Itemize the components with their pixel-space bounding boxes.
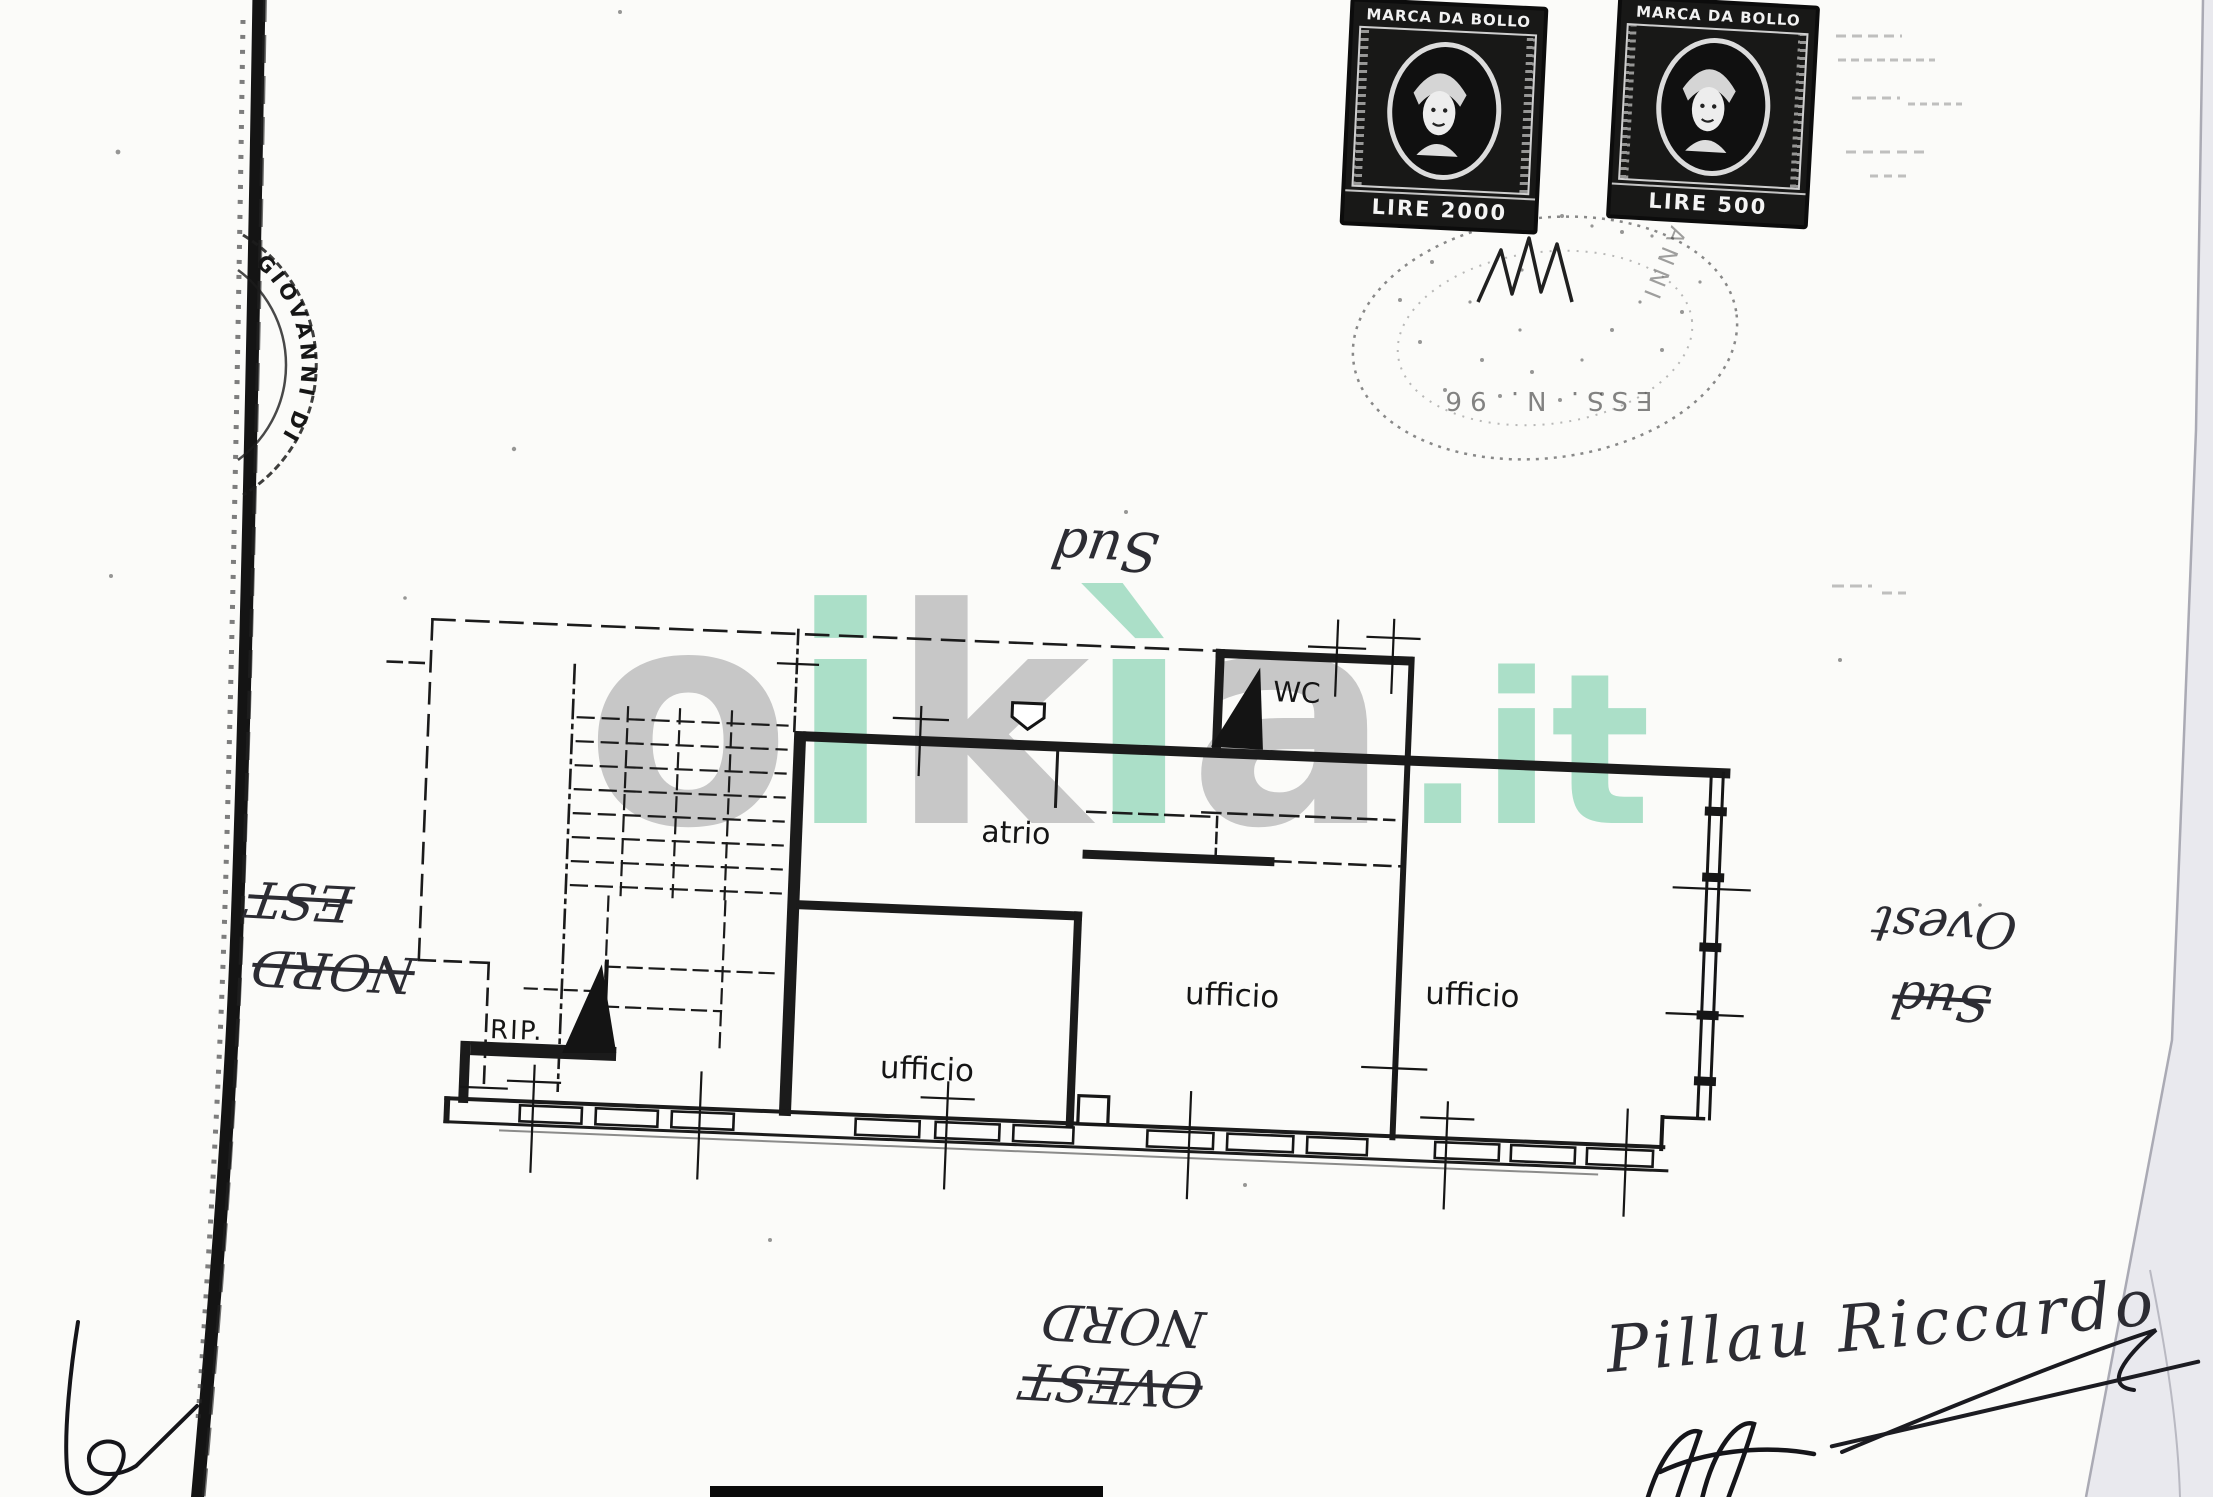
postmark-arc-text: ESS. N. 96 xyxy=(1437,385,1652,415)
wall-bottom-endcap xyxy=(443,1096,450,1123)
orientation-note-bottom-lower: OVEST xyxy=(1018,1351,1207,1418)
italia-head-icon xyxy=(1658,40,1758,163)
orientation-note-right-upper: Ovest xyxy=(1868,894,2022,959)
pier xyxy=(1078,1096,1109,1125)
room-label-atrio: atrio xyxy=(981,815,1052,853)
wall-top xyxy=(803,731,1731,778)
orientation-note-left-lower: NORD xyxy=(248,938,419,1004)
italia-head-icon xyxy=(1390,44,1490,166)
room-label-ufficio-middle: ufficio xyxy=(1184,976,1280,1016)
stamp-effigy xyxy=(1384,39,1505,182)
stamp-denomination: LIRE 2000 xyxy=(1344,189,1535,230)
wall-stairwell xyxy=(779,731,806,1116)
windows-bottom xyxy=(519,1073,1654,1166)
wall-atrio-south xyxy=(1082,850,1274,867)
orientation-note-left-upper: EST xyxy=(244,869,357,932)
room-label-rip: RIP. xyxy=(489,1015,544,1047)
wall-right xyxy=(1661,771,1728,1151)
revenue-stamp-2000: MARCA DA BOLLO LIRE 2000 xyxy=(1340,0,1549,235)
wall-rip-left xyxy=(458,1041,470,1103)
pen-scribble-bottom-left xyxy=(66,1322,197,1493)
room-labels: atrio WC RIP. ufficio ufficio ufficio xyxy=(488,644,1532,1111)
stamp-ornament-frame xyxy=(1351,26,1537,196)
room-label-ufficio-left: ufficio xyxy=(879,1050,975,1090)
orientation-note-right-lower: Sud xyxy=(1888,970,1995,1033)
wall-interior-left xyxy=(796,900,1082,920)
orientation-note-bottom-upper: NORD xyxy=(1038,1292,1209,1358)
wall-wc-top xyxy=(1216,649,1413,666)
bottom-black-bar xyxy=(710,1486,1103,1497)
stamp-denomination: LIRE 500 xyxy=(1610,182,1805,225)
revenue-stamp-500: MARCA DA BOLLO LIRE 500 xyxy=(1606,0,1820,229)
stamp-ornament-frame xyxy=(1618,23,1808,190)
scanned-floorplan-document: oikìa.it GIOVANNI DI ESS. N. 96 ANNI xyxy=(0,0,2213,1497)
pen-squiggle xyxy=(1478,238,1572,302)
orientation-note-top: Sud xyxy=(1047,515,1163,583)
plan-drawing: GIOVANNI DI ESS. N. 96 ANNI xyxy=(0,0,2213,1497)
interior-dashes xyxy=(1054,752,1405,867)
postmark: ESS. N. 96 ANNI xyxy=(1339,190,1751,481)
room-label-ufficio-right: ufficio xyxy=(1425,975,1521,1015)
staircase-hatch xyxy=(523,704,788,1054)
stamp-effigy xyxy=(1653,34,1775,178)
signature-partial-strokes xyxy=(1648,1423,1814,1497)
scan-fold-line xyxy=(197,0,265,1497)
faded-print-residue xyxy=(1832,36,1962,593)
room-label-wc: WC xyxy=(1273,675,1322,710)
door-swing-rip xyxy=(562,963,620,1055)
entrance-arrow-icon xyxy=(1012,703,1045,730)
floorplan: atrio WC RIP. ufficio ufficio ufficio xyxy=(368,580,1760,1221)
